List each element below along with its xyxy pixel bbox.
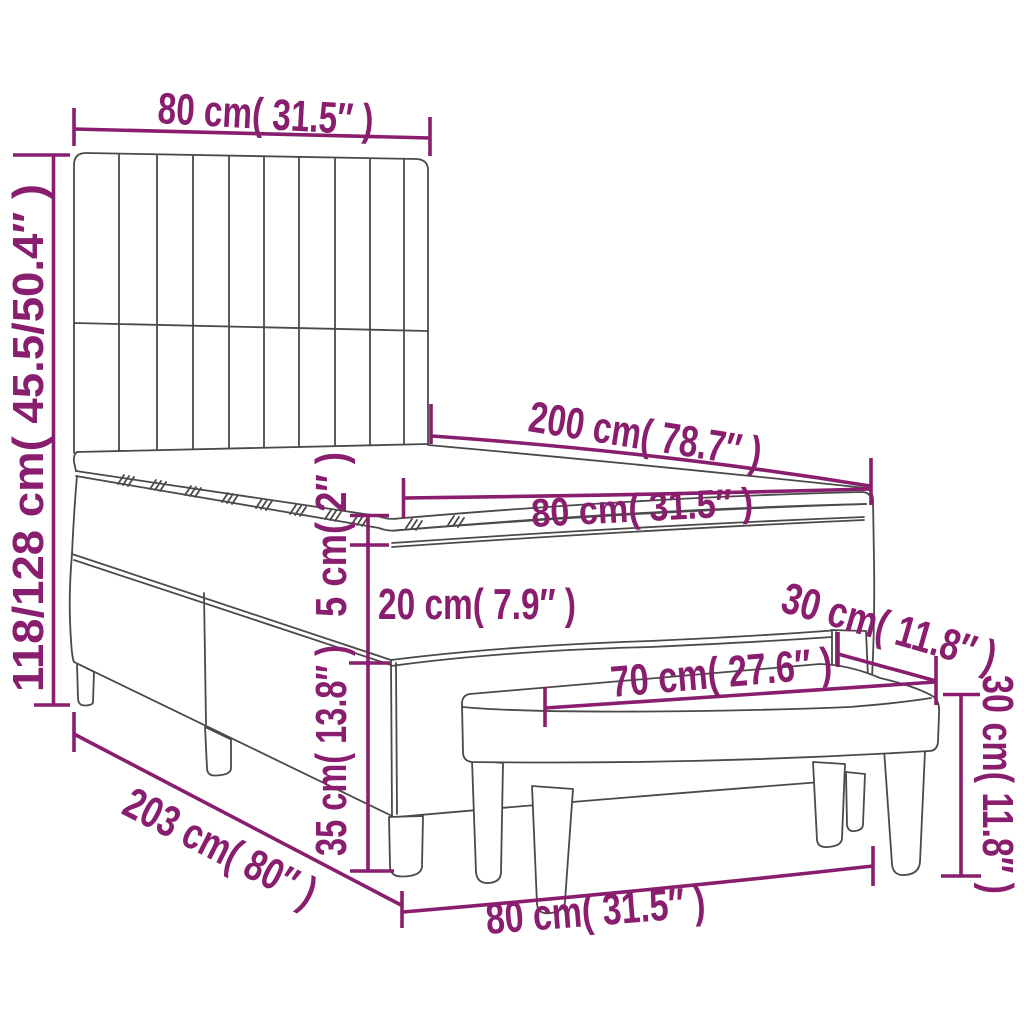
svg-text:30 cm( 11.8″ ): 30 cm( 11.8″ ) xyxy=(973,675,1022,894)
svg-text:20 cm( 7.9″ ): 20 cm( 7.9″ ) xyxy=(378,580,576,629)
svg-text:5 cm( 2″ ): 5 cm( 2″ ) xyxy=(307,452,356,617)
svg-text:35 cm( 13.8″ ): 35 cm( 13.8″ ) xyxy=(307,645,356,856)
svg-text:118/128 cm( 45.5/50.4″ ): 118/128 cm( 45.5/50.4″ ) xyxy=(4,184,53,692)
